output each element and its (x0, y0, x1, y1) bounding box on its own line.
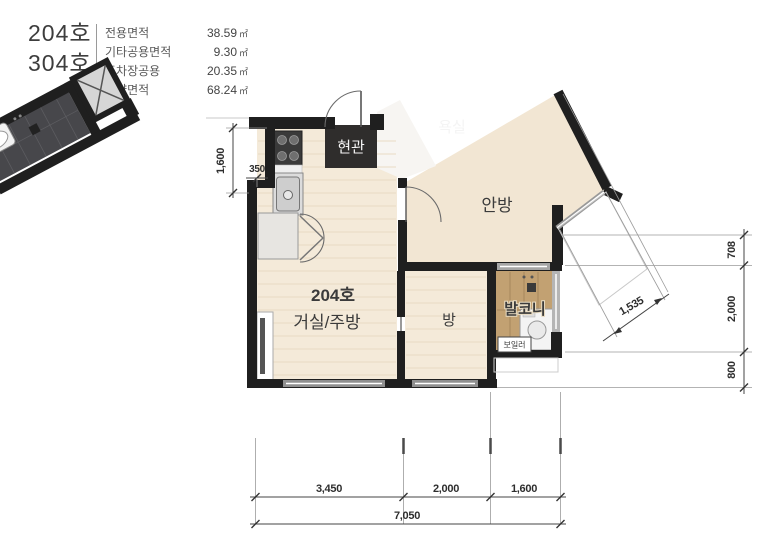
label-room: 방 (442, 312, 456, 329)
label-boiler: 보일러 (503, 341, 525, 350)
bottom-dimensions: 3,450 2,000 1,600 7,050 (250, 392, 566, 528)
bedroom-left-wall-b (398, 220, 407, 267)
label-balcony: 발코니 (504, 301, 545, 318)
kitchen-top-wall (249, 117, 335, 129)
floorplan-drawing: 1,535 3,450 2,000 1,600 7,050 708 2,000 … (0, 0, 773, 546)
sink-drain (284, 191, 293, 200)
balcony-sill-outline (494, 358, 558, 372)
hose-bib-icon (523, 276, 526, 279)
label-master-bedroom: 안방 (481, 196, 513, 215)
bedroom-left-wall-a (398, 178, 407, 188)
washer-door (528, 321, 546, 339)
bathroom-group (0, 59, 142, 213)
dim-800: 800 (726, 361, 738, 379)
label-unit-number: 204호 (311, 286, 355, 305)
dim-diagonal: 1,535 (617, 295, 646, 318)
dim-7050: 7,050 (394, 510, 420, 522)
living-room-wall-a (397, 271, 405, 317)
extension-line (607, 194, 665, 300)
left-upper-wall (265, 117, 275, 187)
living-room-wall-b (397, 331, 405, 379)
living-left-window-bar (260, 318, 265, 374)
hose-bib-icon (531, 276, 534, 279)
refrigerator-icon (258, 213, 298, 259)
balcony-corner-wall (551, 332, 562, 352)
counter (274, 165, 302, 173)
extension-lines (256, 392, 561, 524)
stove-icon (274, 131, 302, 165)
dim-350: 350 (249, 164, 266, 175)
dim-708: 708 (726, 241, 738, 259)
extension-line (560, 230, 617, 337)
label-living-kitchen: 거실/주방 (293, 313, 361, 332)
dim-3450: 3,450 (316, 483, 342, 495)
dim-2000-bottom: 2,000 (433, 483, 459, 495)
label-entrance: 현관 (337, 139, 365, 156)
floorplan-page: 204호 304호 전용면적 38.59 ㎡ 기타공용면적 9.30 ㎡ 주차장… (0, 0, 773, 546)
entrance-door-stub (370, 114, 384, 130)
bedroom-floor (406, 91, 607, 262)
wall-stubs (404, 438, 561, 454)
dim-2000-right: 2,000 (726, 296, 738, 322)
room-balcony-wall (487, 263, 496, 388)
left-lower-wall (247, 180, 257, 388)
dim-1600-left: 1,600 (215, 148, 227, 174)
drain-vent-icon (527, 283, 536, 292)
label-bathroom: 욕실 (438, 119, 466, 136)
dim-1600-bottom: 1,600 (511, 483, 537, 495)
